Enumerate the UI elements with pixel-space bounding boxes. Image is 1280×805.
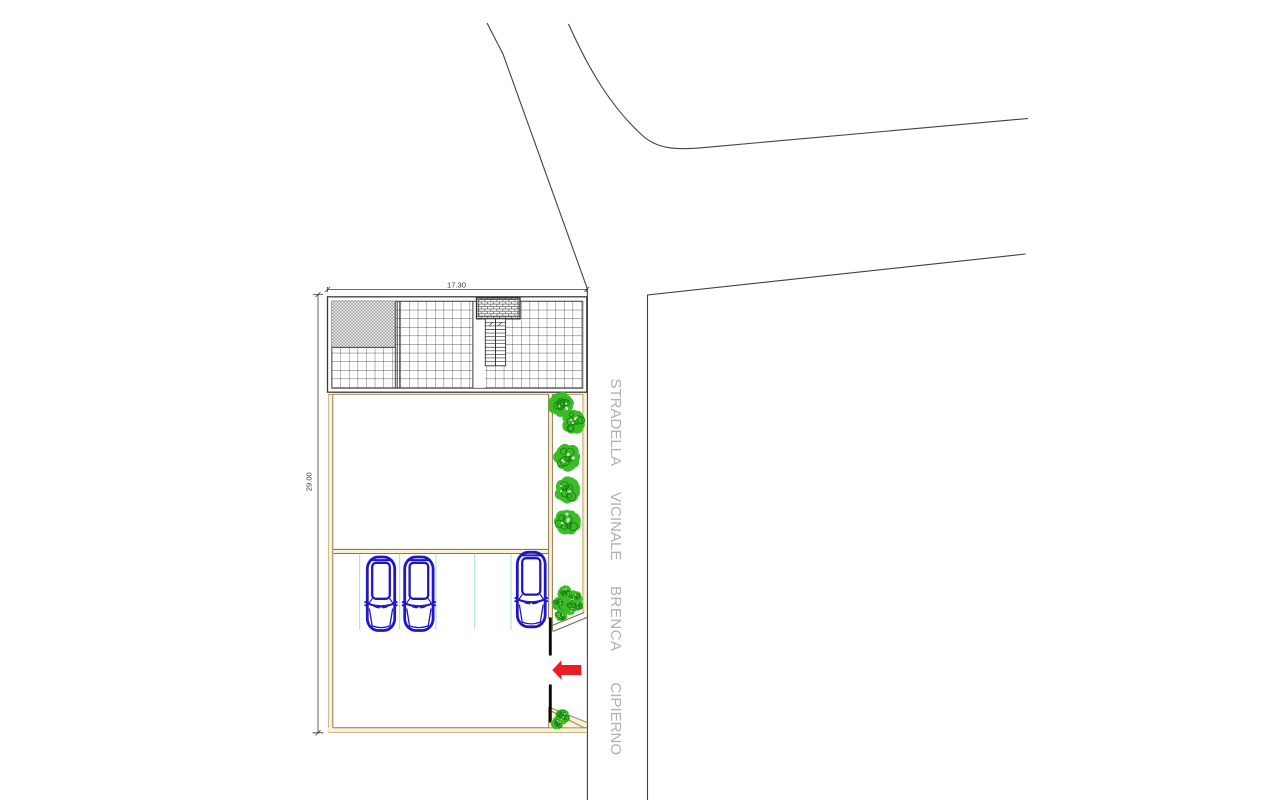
svg-text:17.30: 17.30 bbox=[447, 281, 466, 290]
svg-text:29.00: 29.00 bbox=[305, 472, 314, 491]
svg-text:STRADELLA: STRADELLA bbox=[607, 379, 624, 467]
svg-text:BRENCA: BRENCA bbox=[607, 586, 624, 652]
svg-text:VICINALE: VICINALE bbox=[607, 492, 624, 560]
svg-text:CIPIERNO: CIPIERNO bbox=[607, 683, 624, 756]
